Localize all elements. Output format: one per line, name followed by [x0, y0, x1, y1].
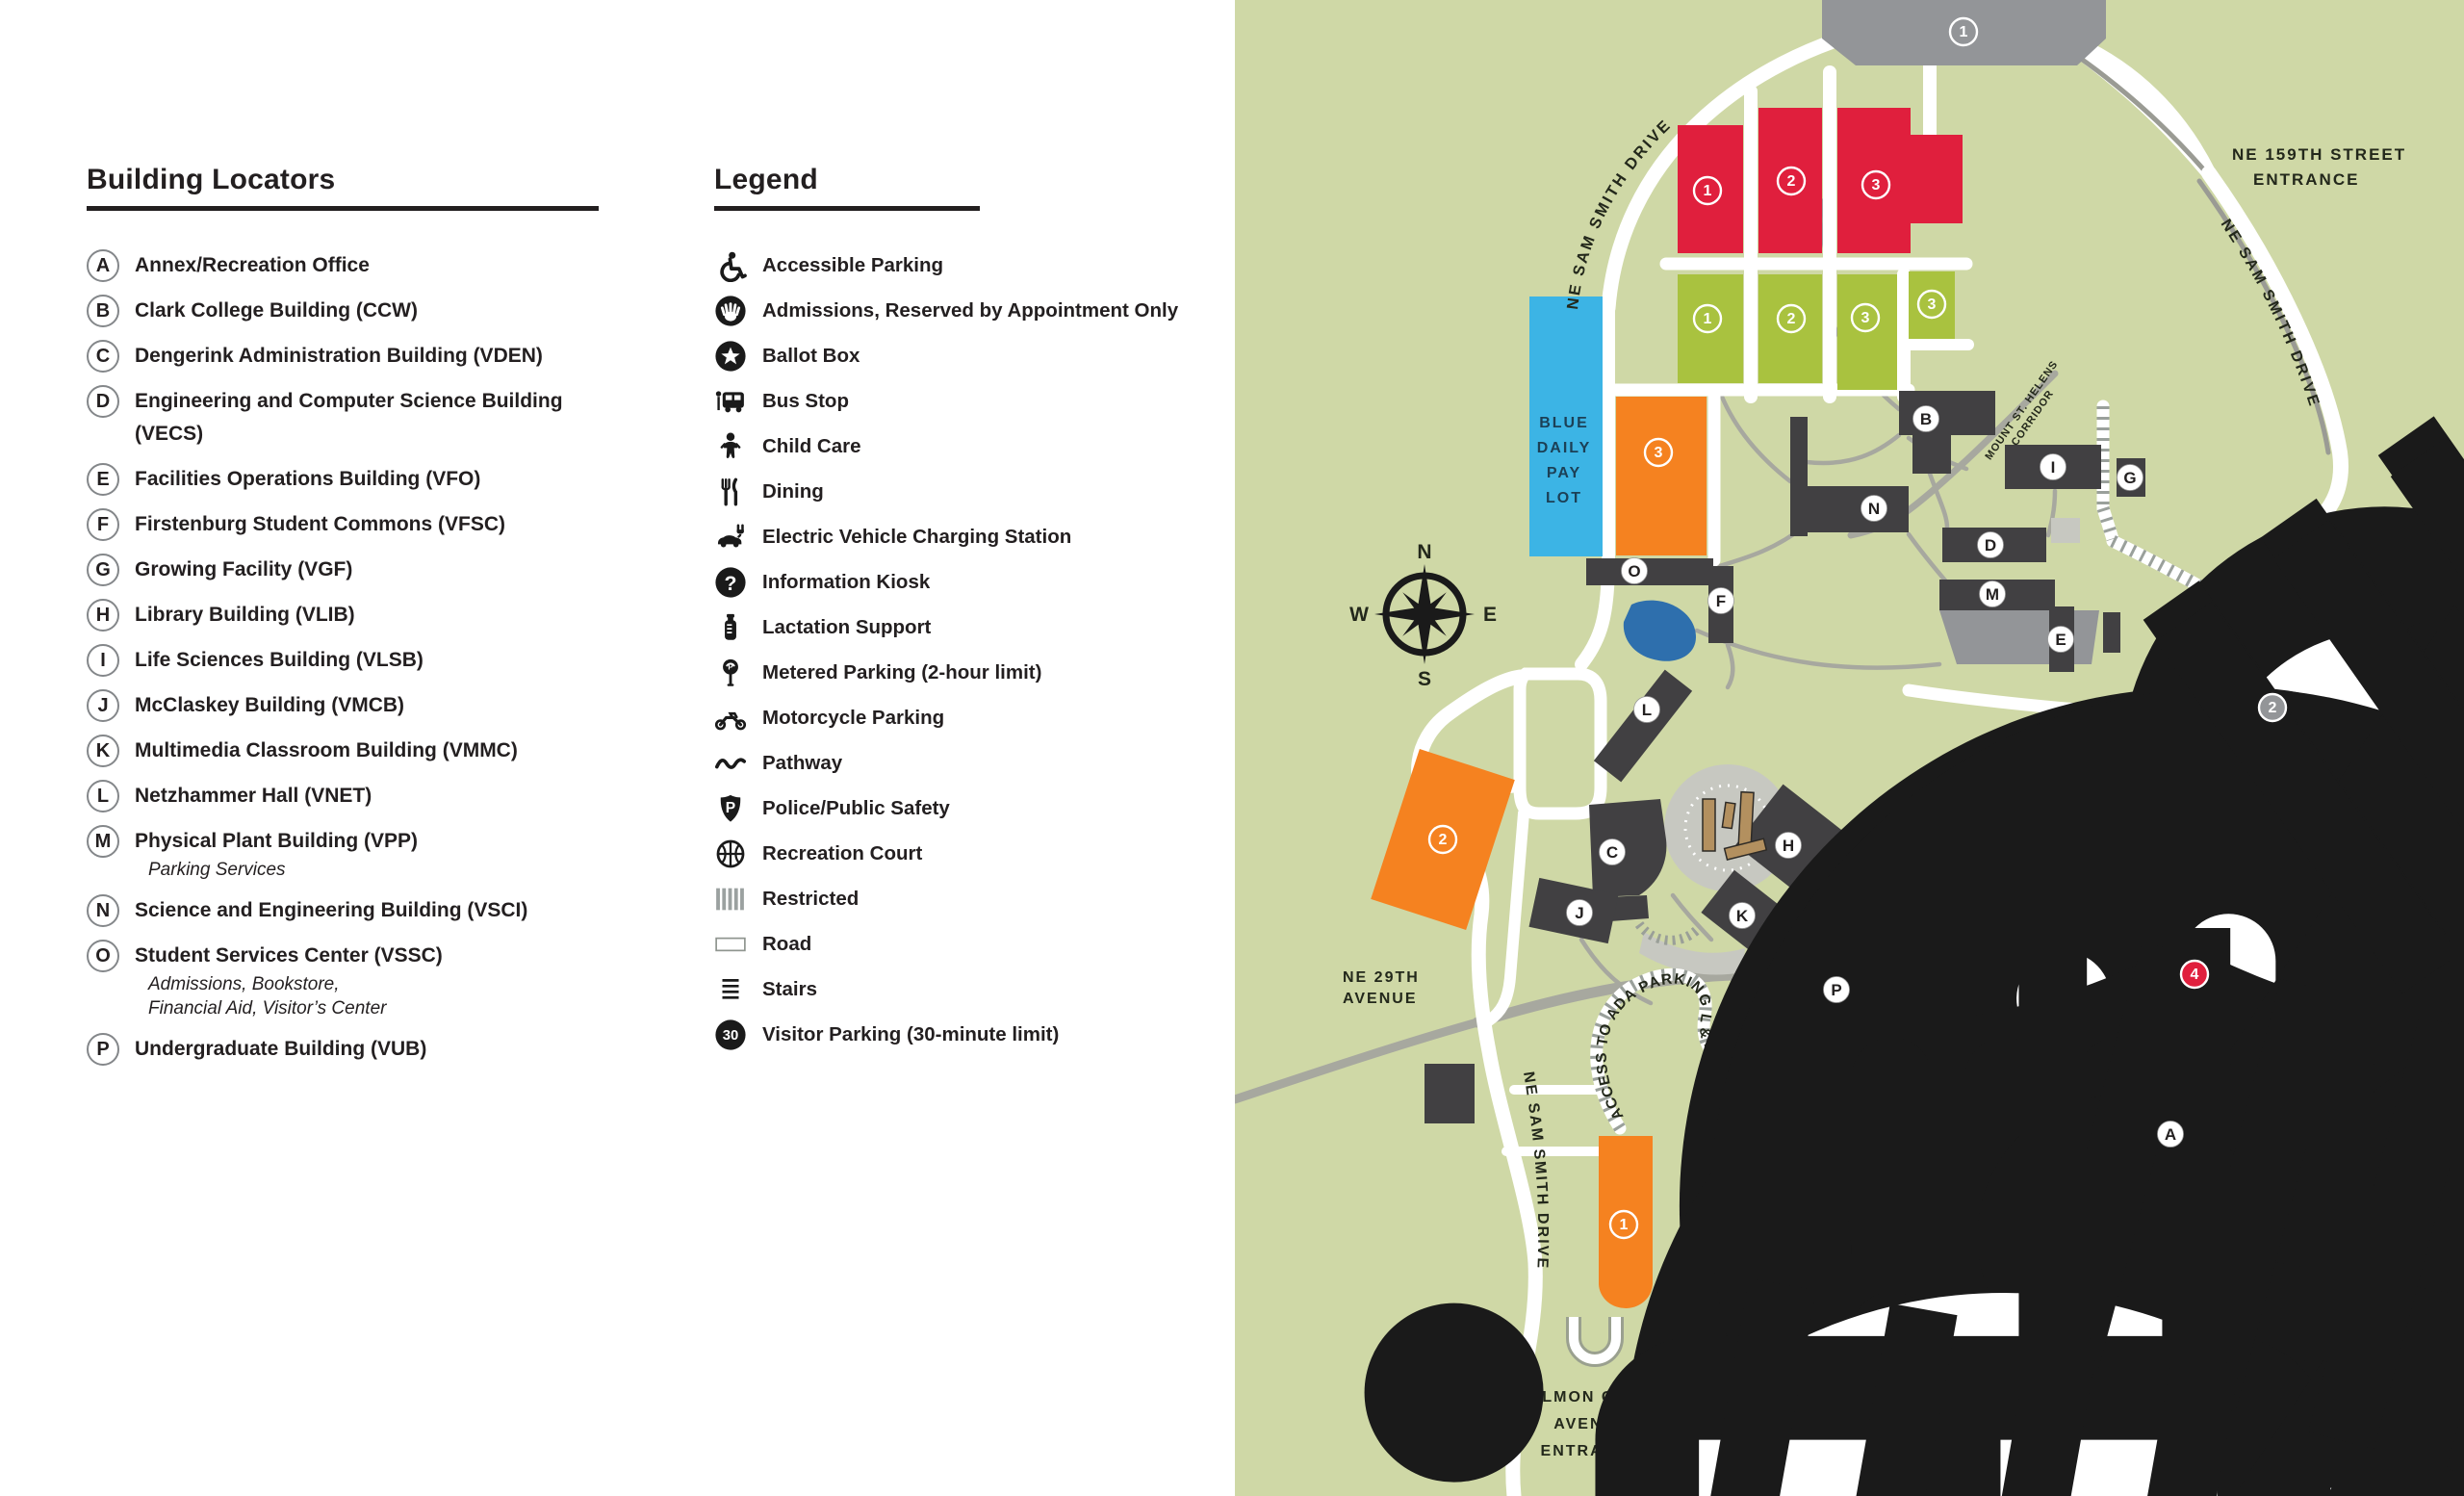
wheelchair-icon — [714, 249, 747, 282]
red-lot-3-ext — [1911, 135, 1963, 223]
legend-item: Bus Stop — [714, 385, 1215, 418]
legend-label: Accessible Parking — [762, 249, 943, 282]
facilities-yard — [1939, 610, 2099, 664]
building-name: McClaskey Building (VMCB) — [135, 689, 404, 722]
building-B — [1899, 391, 1995, 435]
lot-badge: 1 — [1694, 177, 1721, 204]
legend-item: Electric Vehicle Charging Station — [714, 521, 1215, 554]
svg-text:O: O — [1628, 562, 1640, 580]
svg-text:K: K — [1736, 907, 1749, 925]
legend-label: Pathway — [762, 747, 842, 780]
legend-label: Bus Stop — [762, 385, 849, 418]
ballot-icon — [714, 340, 747, 373]
building-locator-item: K Multimedia Classroom Building (VMMC) — [87, 735, 626, 767]
legend-label: Recreation Court — [762, 838, 922, 870]
lot-badge: 1 — [1610, 1211, 1637, 1238]
legend-item: Dining — [714, 476, 1215, 508]
roadswatch-icon — [714, 928, 747, 961]
building-name: Dengerink Administration Building (VDEN) — [135, 340, 543, 373]
building-sub-label: Admissions, Bookstore, — [148, 972, 443, 996]
building-badge-O: O — [1622, 558, 1648, 584]
building-name: Student Services Center (VSSC) — [135, 940, 443, 972]
lot-badge: 2 — [2259, 694, 2286, 721]
building-locators-list: A Annex/Recreation Office B Clark Colleg… — [87, 249, 626, 1066]
legend-title: Legend — [714, 164, 1215, 206]
compass-e: E — [1483, 604, 1497, 626]
lot-badge: 1 — [1694, 305, 1721, 332]
legend-item: Lactation Support — [714, 611, 1215, 644]
building-N-tower — [1790, 417, 1808, 536]
svg-text:3: 3 — [1928, 297, 1937, 313]
building-locator-item: L Netzhammer Hall (VNET) — [87, 780, 626, 812]
building-locator-item: P Undergraduate Building (VUB) — [87, 1033, 626, 1066]
legend-item: Police/Public Safety — [714, 792, 1215, 825]
building-locator-item: N Science and Engineering Building (VSCI… — [87, 894, 626, 927]
compass-n: N — [1417, 541, 1431, 563]
building-badge-B: B — [1913, 406, 1939, 432]
lot-badge: 3 — [1918, 291, 1945, 318]
building-locators-title: Building Locators — [87, 164, 626, 206]
legend-label: Dining — [762, 476, 824, 508]
lot-badge: 2 — [1778, 305, 1805, 332]
building-name: Science and Engineering Building (VSCI) — [135, 894, 527, 927]
svg-text:3: 3 — [1861, 310, 1870, 326]
blue-lot-line: LOT — [1546, 490, 1582, 506]
svg-text:A: A — [2165, 1125, 2176, 1144]
lot-badge: 4 — [2181, 961, 2208, 988]
stairs-icon — [714, 973, 747, 1006]
building-name: Facilities Operations Building (VFO) — [135, 463, 480, 496]
svg-text:2: 2 — [1439, 832, 1448, 848]
lot-badge: 3 — [1852, 304, 1879, 331]
legend-panel: Legend Accessible Parking Admissions, Re… — [714, 164, 1215, 1064]
lot-badge: 2 — [1778, 168, 1805, 194]
compass-s: S — [1418, 668, 1431, 690]
building-name: Physical Plant Building (VPP) — [135, 825, 418, 858]
label-ne29-1: NE 29TH — [1343, 969, 1420, 986]
building-name: Clark College Building (CCW) — [135, 295, 418, 327]
building-letter-badge: H — [87, 599, 119, 632]
blue-lot-line: PAY — [1547, 465, 1581, 481]
svg-text:3: 3 — [1872, 177, 1881, 193]
building-name: Engineering and Computer Science Buildin… — [135, 385, 626, 451]
building-letter-badge: O — [87, 940, 119, 972]
building-locator-item: I Life Sciences Building (VLSB) — [87, 644, 626, 677]
legend-item: Metered Parking (2-hour limit) — [714, 657, 1215, 689]
restricted-icon — [714, 883, 747, 916]
building-badge-M: M — [1980, 581, 2006, 607]
legend-item: Visitor Parking (30-minute limit) — [714, 1019, 1215, 1051]
building-name: Growing Facility (VGF) — [135, 554, 352, 586]
legend-item: Information Kiosk — [714, 566, 1215, 599]
admissions-icon — [714, 295, 747, 327]
svg-text:G: G — [2123, 469, 2136, 487]
moto-icon — [714, 702, 747, 735]
building-badge-L: L — [1634, 697, 1660, 723]
building-locator-item: A Annex/Recreation Office — [87, 249, 626, 282]
building-badge-I: I — [2040, 454, 2066, 480]
building-letter-badge: A — [87, 249, 119, 282]
building-name: Undergraduate Building (VUB) — [135, 1033, 426, 1066]
legend-label: Information Kiosk — [762, 566, 930, 599]
legend-item: Stairs — [714, 973, 1215, 1006]
legend-item: Child Care — [714, 430, 1215, 463]
lot-badge: 3 — [1645, 439, 1672, 466]
label-ne159-2: ENTRANCE — [2253, 170, 2359, 189]
legend-label: Ballot Box — [762, 340, 860, 373]
police-icon — [714, 792, 747, 825]
blue-lot-line: DAILY — [1537, 440, 1592, 456]
legend-item: Pathway — [714, 747, 1215, 780]
lot-badge: 2 — [1429, 826, 1456, 853]
dining-icon — [714, 476, 747, 508]
legend-label: Restricted — [762, 883, 859, 916]
svg-text:D: D — [1985, 536, 1996, 555]
svg-text:I: I — [2051, 458, 2056, 477]
building-letter-badge: N — [87, 894, 119, 927]
building-badge-H: H — [1776, 833, 1802, 859]
title-underline — [87, 206, 599, 211]
building-locator-item: B Clark College Building (CCW) — [87, 295, 626, 327]
legend-label: Electric Vehicle Charging Station — [762, 521, 1071, 554]
blue-lot-line: BLUE — [1539, 415, 1589, 431]
building-letter-badge: M — [87, 825, 119, 858]
building-badge-A: A — [2158, 1122, 2184, 1148]
building-letter-badge: I — [87, 644, 119, 677]
building-N — [1808, 486, 1909, 532]
svg-text:C: C — [1606, 843, 1618, 862]
legend-item: Road — [714, 928, 1215, 961]
svg-text:N: N — [1868, 500, 1880, 518]
building-locator-item: G Growing Facility (VGF) — [87, 554, 626, 586]
svg-text:2: 2 — [2269, 700, 2277, 716]
building-badge-G: G — [2117, 465, 2143, 491]
svg-text:B: B — [1920, 410, 1932, 428]
svg-text:4: 4 — [2191, 967, 2199, 983]
svg-text:P: P — [1831, 981, 1841, 999]
building-locator-item: E Facilities Operations Building (VFO) — [87, 463, 626, 496]
svg-text:L: L — [1642, 701, 1652, 719]
building-badge-C: C — [1600, 839, 1626, 865]
svg-text:2: 2 — [1787, 311, 1796, 327]
legend-item: Motorcycle Parking — [714, 702, 1215, 735]
building-locator-item: C Dengerink Administration Building (VDE… — [87, 340, 626, 373]
building-letter-badge: L — [87, 780, 119, 812]
building-badge-P: P — [1824, 977, 1850, 1003]
building-letter-badge: D — [87, 385, 119, 418]
building-B-wing — [1912, 433, 1951, 474]
svg-text:H: H — [1783, 837, 1794, 855]
legend-item: Ballot Box — [714, 340, 1215, 373]
building-name: Firstenburg Student Commons (VFSC) — [135, 508, 505, 541]
svg-text:M: M — [1986, 585, 1999, 604]
info-icon — [714, 566, 747, 599]
lot-badge: 3 — [1862, 171, 1889, 198]
building-letter-badge: K — [87, 735, 119, 767]
building-locators-panel: Building Locators A Annex/Recreation Off… — [87, 164, 626, 1078]
building-letter-badge: G — [87, 554, 119, 586]
orange-lot-3 — [1616, 397, 1707, 555]
lot-badge: 1 — [1950, 18, 1977, 45]
legend-label: Metered Parking (2-hour limit) — [762, 657, 1041, 689]
building-locator-item: F Firstenburg Student Commons (VFSC) — [87, 508, 626, 541]
building-letter-badge: F — [87, 508, 119, 541]
label-ne159-1: NE 159TH STREET — [2232, 145, 2406, 164]
building-sub-label: Parking Services — [148, 858, 418, 882]
legend-label: Motorcycle Parking — [762, 702, 944, 735]
legend-label: Admissions, Reserved by Appointment Only — [762, 295, 1178, 327]
building-locator-item: H Library Building (VLIB) — [87, 599, 626, 632]
svg-text:F: F — [1716, 592, 1726, 610]
svg-text:1: 1 — [1704, 311, 1712, 327]
ev-icon — [714, 521, 747, 554]
legend-item: Admissions, Reserved by Appointment Only — [714, 295, 1215, 327]
legend-list: Accessible Parking Admissions, Reserved … — [714, 249, 1215, 1051]
legend-label: Lactation Support — [762, 611, 931, 644]
building-locator-item: J McClaskey Building (VMCB) — [87, 689, 626, 722]
svg-text:J: J — [1575, 904, 1583, 922]
label-ne29-2: AVENUE — [1343, 991, 1418, 1007]
svg-text:2: 2 — [1787, 173, 1796, 190]
legend-label: Visitor Parking (30-minute limit) — [762, 1019, 1059, 1051]
svg-text:1: 1 — [1620, 1217, 1629, 1233]
building-badge-N: N — [1861, 496, 1887, 522]
accessible-pad-D — [2051, 518, 2080, 543]
building-badge-E: E — [2048, 627, 2074, 653]
building-locator-item: O Student Services Center (VSSC)Admissio… — [87, 940, 626, 1020]
building-O — [1586, 558, 1713, 585]
building-letter-badge: P — [87, 1033, 119, 1066]
building-name: Annex/Recreation Office — [135, 249, 370, 282]
building-name: Netzhammer Hall (VNET) — [135, 780, 372, 812]
building-badge-K: K — [1730, 903, 1756, 929]
svg-text:E: E — [2055, 631, 2066, 649]
legend-item: Restricted — [714, 883, 1215, 916]
svg-text:1: 1 — [1960, 24, 1968, 40]
building-badge-J: J — [1567, 900, 1593, 926]
visitor30-icon — [714, 1019, 747, 1051]
building-badge-D: D — [1978, 532, 2004, 558]
outbuilding-E — [2103, 612, 2120, 653]
legend-item: Accessible Parking — [714, 249, 1215, 282]
building-letter-badge: J — [87, 689, 119, 722]
building-letter-badge: B — [87, 295, 119, 327]
campus-map-page: { "panel": { "building_locators": { "tit… — [0, 0, 2464, 1496]
building-name: Library Building (VLIB) — [135, 599, 355, 632]
compass-w: W — [1349, 604, 1369, 626]
svg-text:1: 1 — [1704, 183, 1712, 199]
meter-icon — [714, 657, 747, 689]
legend-label: Child Care — [762, 430, 861, 463]
recreation-court — [1424, 1064, 1475, 1123]
title-underline — [714, 206, 980, 211]
campus-map: ? P P — [1235, 0, 2464, 1496]
bus-icon — [714, 385, 747, 418]
legend-label: Police/Public Safety — [762, 792, 950, 825]
lactation-icon — [714, 611, 747, 644]
child-icon — [714, 430, 747, 463]
building-sub-label: Financial Aid, Visitor’s Center — [148, 996, 443, 1020]
legend-label: Road — [762, 928, 811, 961]
legend-label: Stairs — [762, 973, 817, 1006]
svg-text:3: 3 — [1655, 445, 1663, 461]
building-badge-F: F — [1708, 588, 1734, 614]
building-name: Multimedia Classroom Building (VMMC) — [135, 735, 518, 767]
building-letter-badge: C — [87, 340, 119, 373]
building-locator-item: D Engineering and Computer Science Build… — [87, 385, 626, 451]
building-locator-item: M Physical Plant Building (VPP)Parking S… — [87, 825, 626, 882]
pathway-icon — [714, 747, 747, 780]
basketball-icon — [714, 838, 747, 870]
building-name: Life Sciences Building (VLSB) — [135, 644, 423, 677]
building-letter-badge: E — [87, 463, 119, 496]
legend-item: Recreation Court — [714, 838, 1215, 870]
